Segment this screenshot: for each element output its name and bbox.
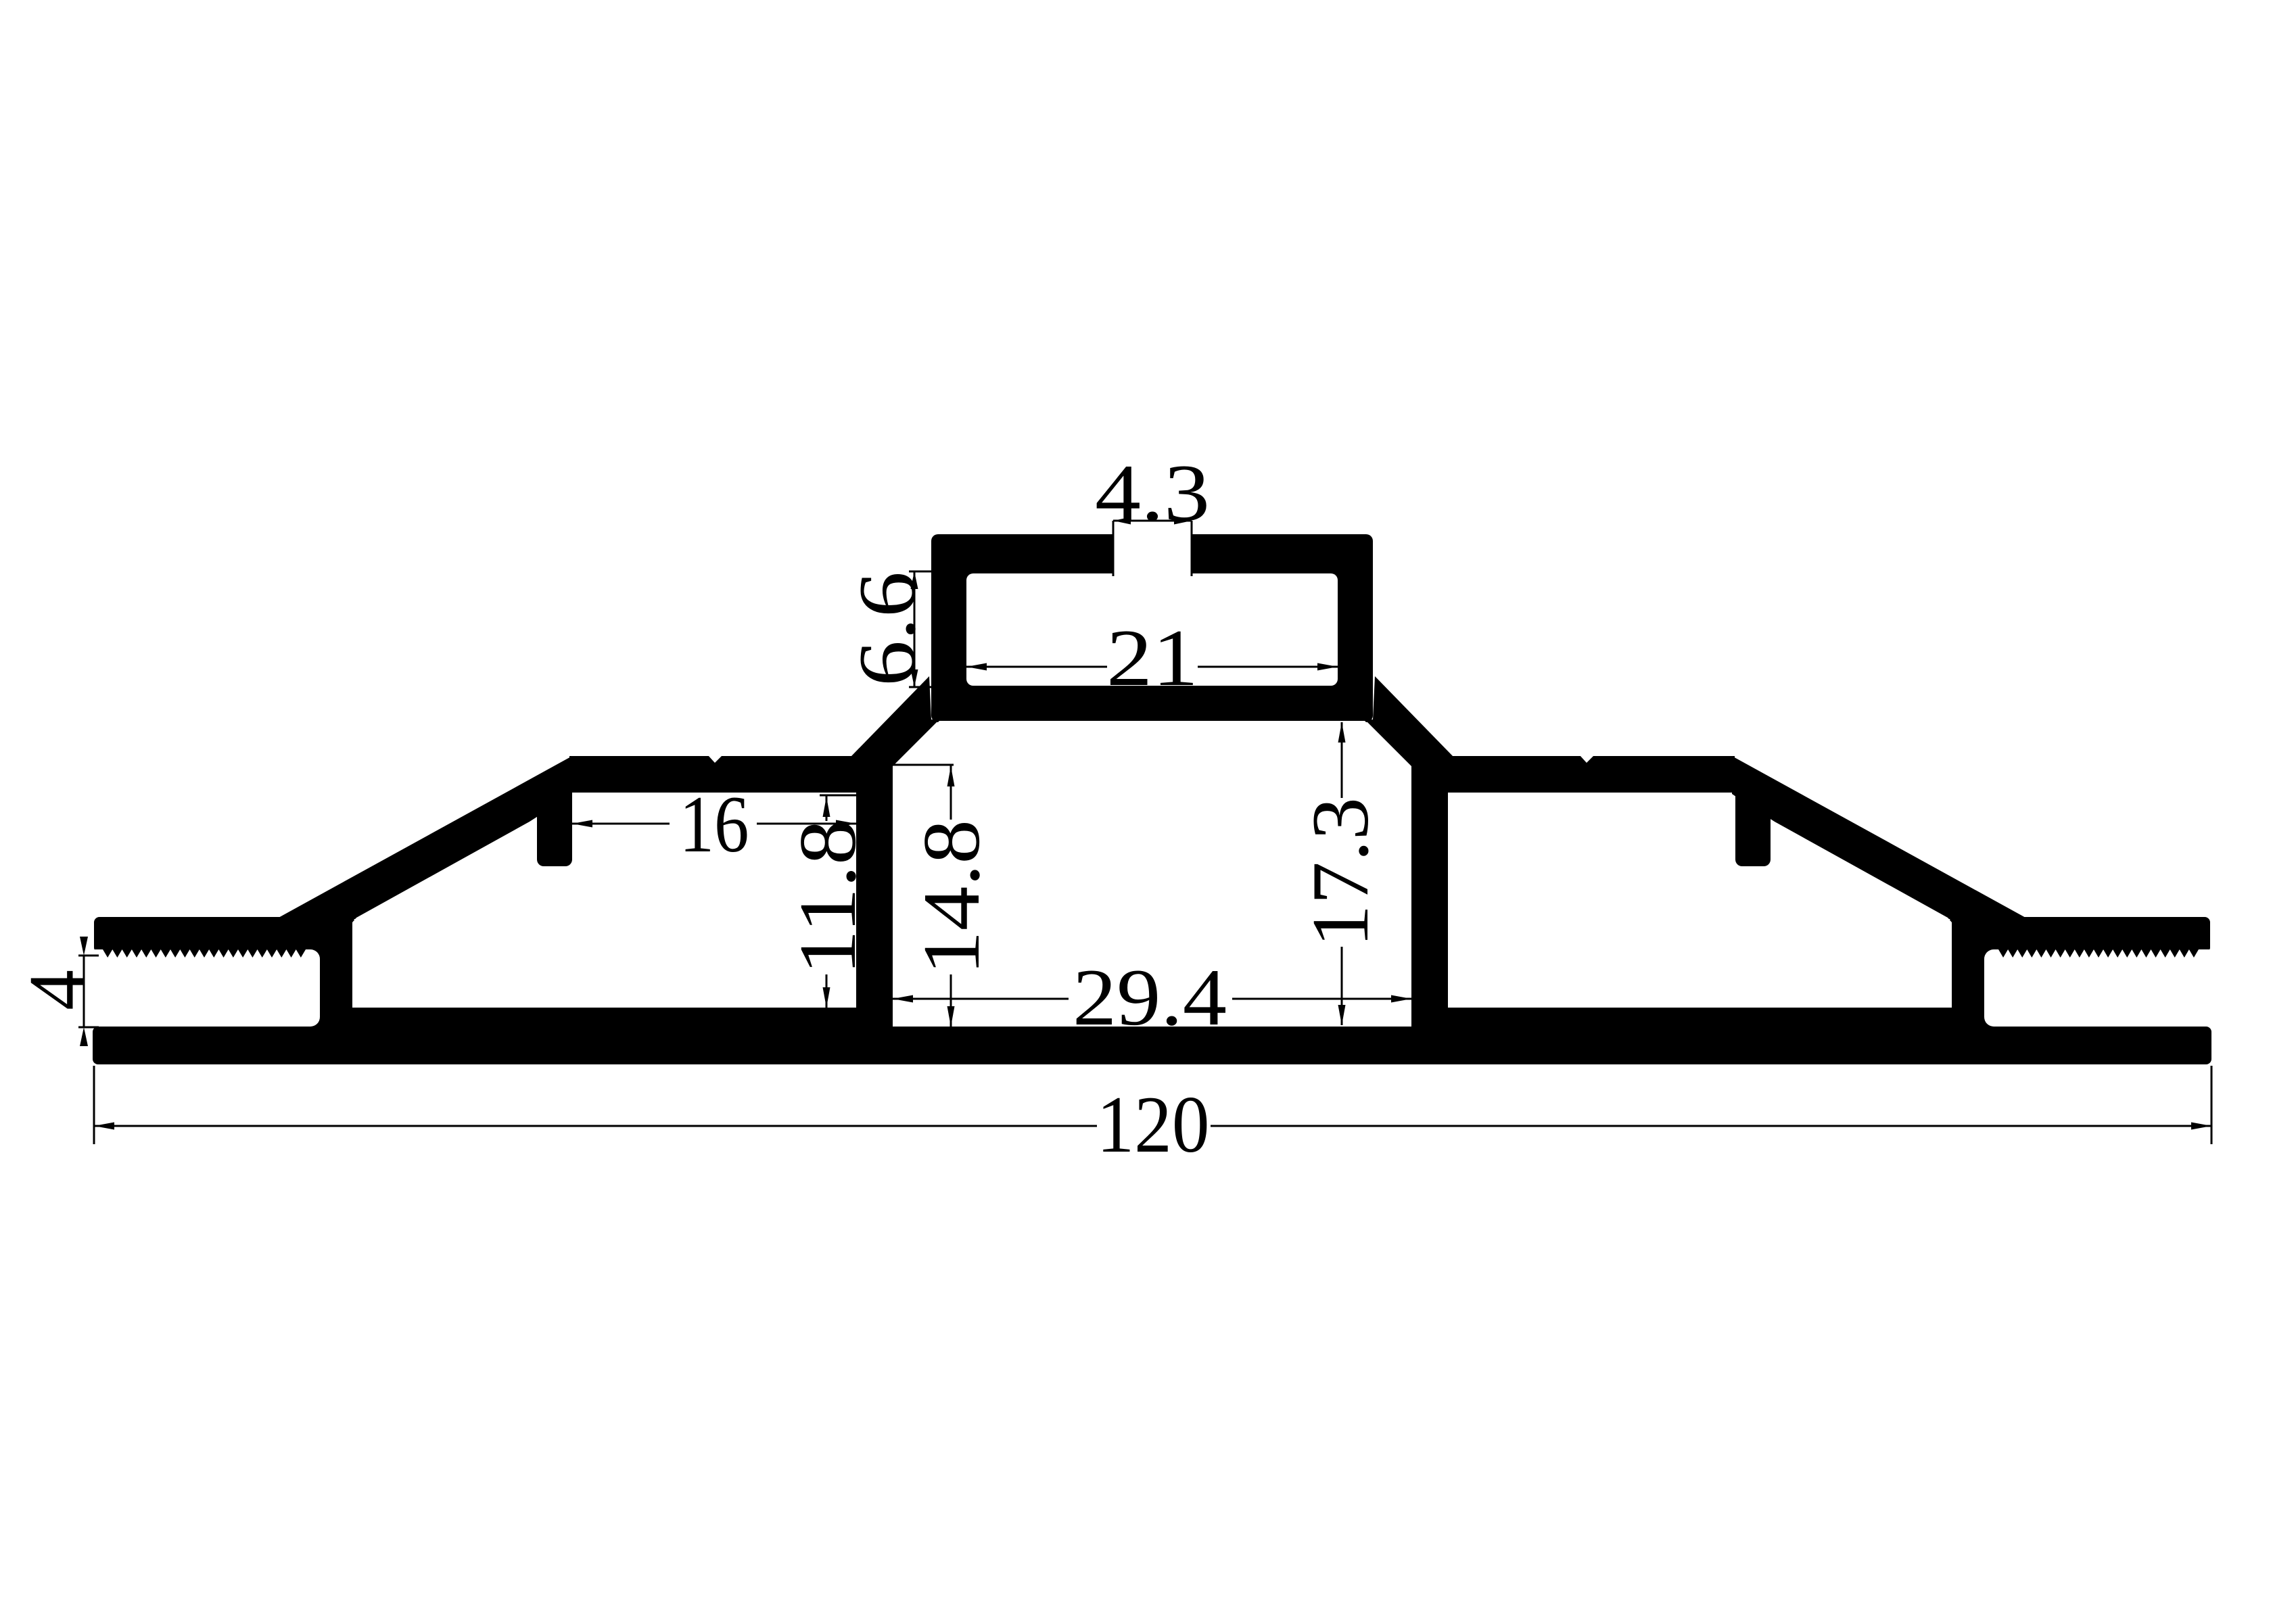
svg-text:6.6: 6.6 bbox=[842, 571, 932, 686]
svg-text:11.8: 11.8 bbox=[782, 820, 872, 975]
svg-text:29.4: 29.4 bbox=[1073, 952, 1227, 1042]
svg-text:16: 16 bbox=[680, 779, 749, 869]
svg-text:120: 120 bbox=[1097, 1079, 1210, 1169]
svg-text:14.8: 14.8 bbox=[906, 820, 996, 975]
svg-text:21: 21 bbox=[1106, 613, 1198, 703]
svg-text:4.3: 4.3 bbox=[1095, 448, 1210, 538]
svg-text:17.3: 17.3 bbox=[1295, 797, 1385, 947]
svg-text:4: 4 bbox=[12, 970, 102, 1010]
